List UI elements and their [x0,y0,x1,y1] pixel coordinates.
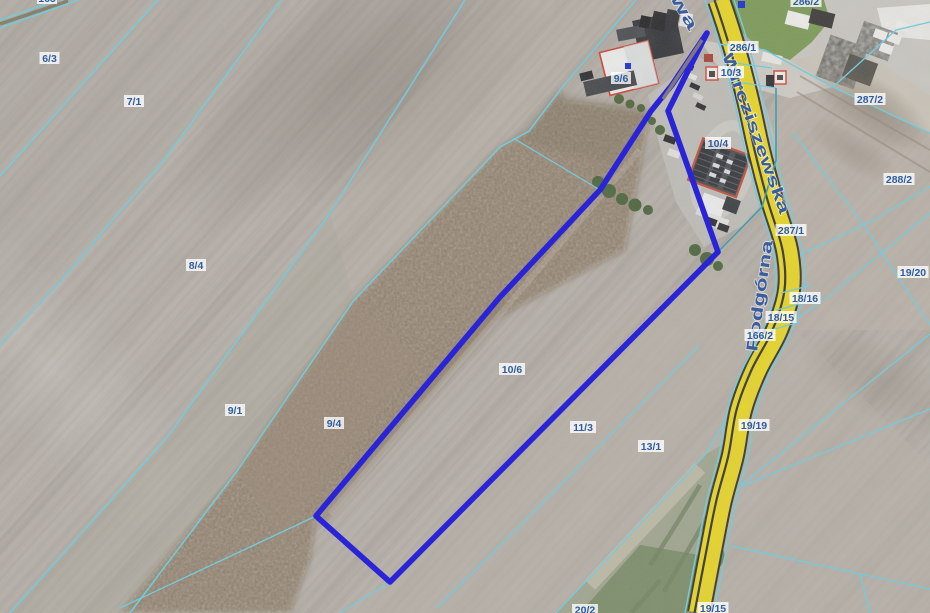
svg-text:9/1: 9/1 [228,405,243,417]
svg-text:166/2: 166/2 [747,330,773,342]
svg-text:10/6: 10/6 [502,364,523,376]
svg-text:10/4: 10/4 [708,138,729,150]
svg-text:19/15: 19/15 [700,603,726,613]
svg-text:9/4: 9/4 [327,418,342,430]
svg-text:9/6: 9/6 [614,73,629,85]
svg-text:287/2: 287/2 [857,94,883,106]
svg-text:6/3: 6/3 [42,53,57,65]
svg-text:7/1: 7/1 [127,96,142,108]
svg-text:20/2: 20/2 [575,604,596,613]
svg-text:288/2: 288/2 [886,174,912,186]
svg-text:165: 165 [38,0,56,5]
svg-text:13/1: 13/1 [641,441,662,453]
svg-text:286/1: 286/1 [730,42,756,54]
svg-text:19/19: 19/19 [741,420,767,432]
svg-text:287/1: 287/1 [778,225,804,237]
svg-text:18/16: 18/16 [792,293,818,305]
svg-text:11/3: 11/3 [573,422,593,434]
svg-text:286/2: 286/2 [793,0,819,8]
svg-text:8/4: 8/4 [189,260,204,272]
svg-text:18/15: 18/15 [768,312,794,324]
svg-text:10/3: 10/3 [721,67,742,79]
svg-text:19/20: 19/20 [900,267,926,279]
